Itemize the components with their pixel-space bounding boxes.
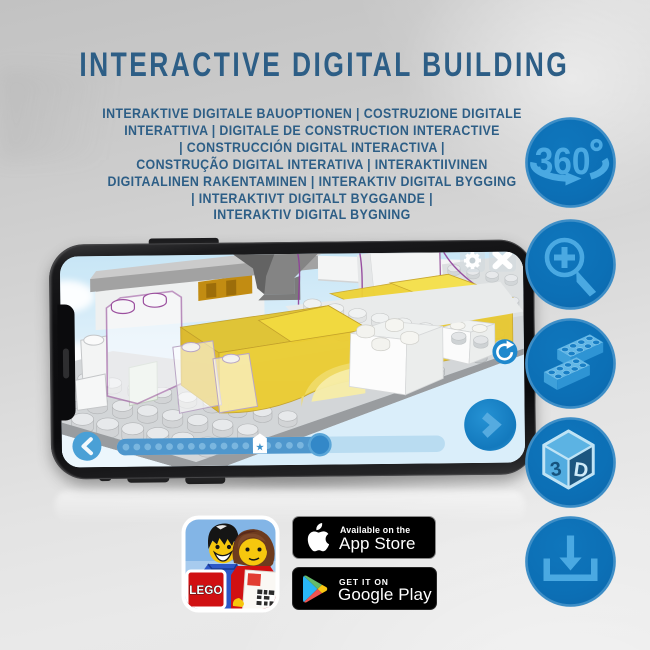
svg-text:360: 360 [535, 140, 591, 182]
svg-text:★: ★ [255, 442, 264, 453]
svg-text:LEGO: LEGO [189, 585, 222, 597]
svg-text:D: D [572, 459, 589, 483]
